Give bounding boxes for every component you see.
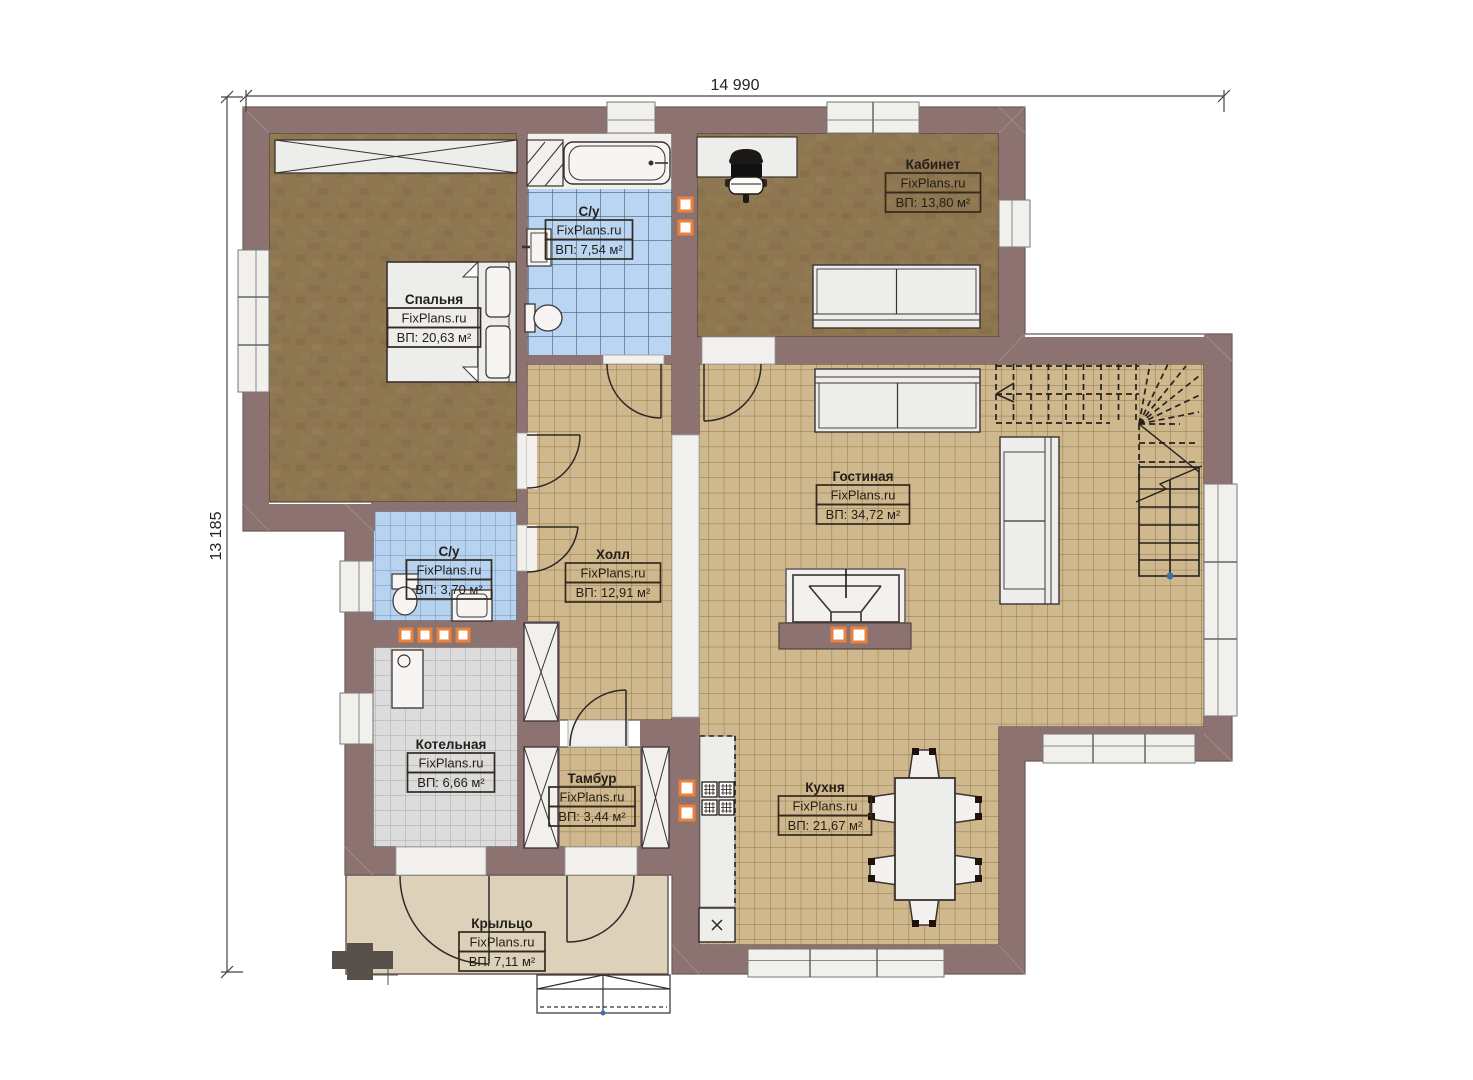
svg-text:ВП: 7,11 м²: ВП: 7,11 м² — [469, 954, 536, 969]
svg-text:FixPlans.ru: FixPlans.ru — [401, 311, 466, 326]
svg-text:Кабинет: Кабинет — [906, 157, 961, 172]
svg-text:FixPlans.ru: FixPlans.ru — [556, 223, 621, 238]
svg-text:Гостиная: Гостиная — [832, 469, 893, 484]
svg-text:ВП: 12,91 м²: ВП: 12,91 м² — [576, 585, 651, 600]
svg-text:FixPlans.ru: FixPlans.ru — [580, 566, 645, 581]
svg-text:Кухня: Кухня — [805, 780, 844, 795]
svg-text:ВП: 20,63 м²: ВП: 20,63 м² — [397, 330, 472, 345]
svg-text:FixPlans.ru: FixPlans.ru — [792, 799, 857, 814]
svg-text:Спальня: Спальня — [405, 292, 463, 307]
svg-text:13 185: 13 185 — [208, 511, 225, 560]
svg-text:ВП: 21,67 м²: ВП: 21,67 м² — [788, 818, 863, 833]
svg-text:ВП: 3,70 м²: ВП: 3,70 м² — [415, 582, 483, 597]
svg-text:Тамбур: Тамбур — [568, 771, 617, 786]
svg-text:FixPlans.ru: FixPlans.ru — [900, 176, 965, 191]
svg-text:ВП: 6,66 м²: ВП: 6,66 м² — [417, 775, 485, 790]
svg-text:14 990: 14 990 — [711, 77, 760, 94]
svg-text:ВП: 13,80 м²: ВП: 13,80 м² — [896, 195, 971, 210]
svg-text:FixPlans.ru: FixPlans.ru — [830, 488, 895, 503]
svg-text:FixPlans.ru: FixPlans.ru — [469, 935, 534, 950]
svg-text:FixPlans.ru: FixPlans.ru — [418, 756, 483, 771]
svg-text:Холл: Холл — [596, 547, 630, 562]
svg-text:ВП: 3,44 м²: ВП: 3,44 м² — [558, 809, 626, 824]
svg-text:ВП: 34,72 м²: ВП: 34,72 м² — [826, 507, 901, 522]
svg-text:FixPlans.ru: FixPlans.ru — [559, 790, 624, 805]
svg-text:С/у: С/у — [438, 544, 460, 559]
svg-text:С/у: С/у — [578, 204, 600, 219]
svg-text:FixPlans.ru: FixPlans.ru — [416, 563, 481, 578]
svg-text:ВП: 7,54 м²: ВП: 7,54 м² — [555, 242, 623, 257]
svg-text:Котельная: Котельная — [416, 737, 487, 752]
svg-text:Крыльцо: Крыльцо — [471, 916, 532, 931]
